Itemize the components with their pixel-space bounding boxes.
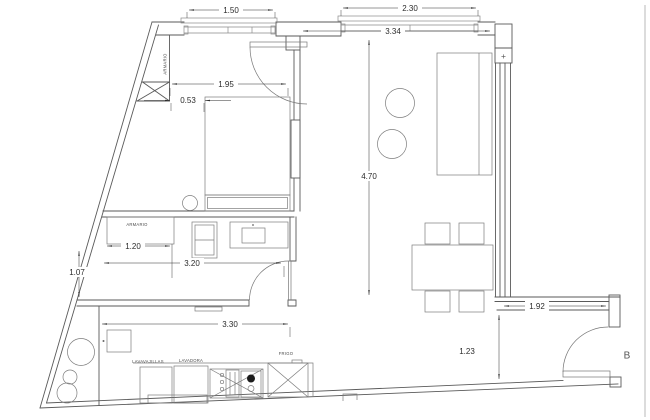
bedroom-window — [181, 18, 277, 34]
threshold-rug — [195, 307, 222, 311]
dim-bedroom-width: 1.95 — [218, 80, 234, 89]
windows — [181, 16, 480, 34]
wall-plus-symbol: + — [501, 51, 506, 61]
chaise — [192, 222, 217, 258]
living-window — [338, 16, 480, 32]
sofa — [437, 53, 492, 175]
label-frigo: FRIGO — [279, 351, 294, 356]
shaft-box — [107, 330, 131, 352]
dim-balcony-opening: 1.92 — [529, 302, 545, 311]
dresser — [230, 222, 288, 248]
dim-living-width: 3.34 — [385, 27, 401, 36]
walls — [40, 22, 621, 408]
bedroom-door — [250, 42, 307, 104]
label-lavavajillas: LAVAVAJILLAS — [132, 359, 164, 364]
bed — [205, 97, 290, 211]
floor-plan-page: 1.50 2.30 3.34 1.95 0.53 4.70 1.20 3.20 … — [0, 0, 650, 420]
dim-room-width: 3.20 — [184, 259, 200, 268]
dresser-knob — [252, 224, 254, 226]
dining-set — [412, 223, 493, 312]
dim-living-length: 4.70 — [361, 172, 377, 181]
shaft-x-box — [137, 82, 170, 101]
bedside-stool — [183, 196, 198, 211]
stove — [210, 369, 263, 398]
dim-bed-gap: 0.53 — [180, 96, 196, 105]
dim-living-window: 2.30 — [402, 4, 418, 13]
dim-left-segment: 1.07 — [69, 268, 85, 277]
dimension-labels: 1.50 2.30 3.34 1.95 0.53 4.70 1.20 3.20 … — [65, 3, 549, 356]
label-balcony: B — [624, 351, 631, 362]
corner-fixtures — [57, 330, 131, 403]
round-table-1 — [386, 89, 415, 118]
label-armario-top: ARMARIO — [163, 53, 168, 75]
burner — [247, 375, 255, 383]
label-armario-mid: ARMARIO — [126, 222, 148, 227]
dim-entry-passage: 1.23 — [459, 347, 475, 356]
partition-pocket — [291, 120, 300, 178]
fridge — [268, 360, 308, 397]
label-lavadora: LAVADORA — [179, 358, 203, 363]
dim-closet-width: 1.20 — [125, 242, 141, 251]
entrance-door — [563, 327, 610, 377]
dimension-lines — [79, 8, 606, 379]
floor-plan-canvas: 1.50 2.30 3.34 1.95 0.53 4.70 1.20 3.20 … — [0, 0, 650, 420]
lower-room-door — [250, 261, 292, 300]
furniture — [57, 53, 493, 403]
room-labels: ARMARIO ARMARIO LAVAVAJILLAS LAVADORA FR… — [126, 51, 630, 364]
dim-kitchen-width: 3.30 — [222, 320, 238, 329]
wardrobe-mid-box — [107, 217, 174, 244]
doors — [250, 42, 611, 377]
round-table-2 — [378, 130, 407, 159]
dim-bedroom-window: 1.50 — [223, 6, 239, 15]
